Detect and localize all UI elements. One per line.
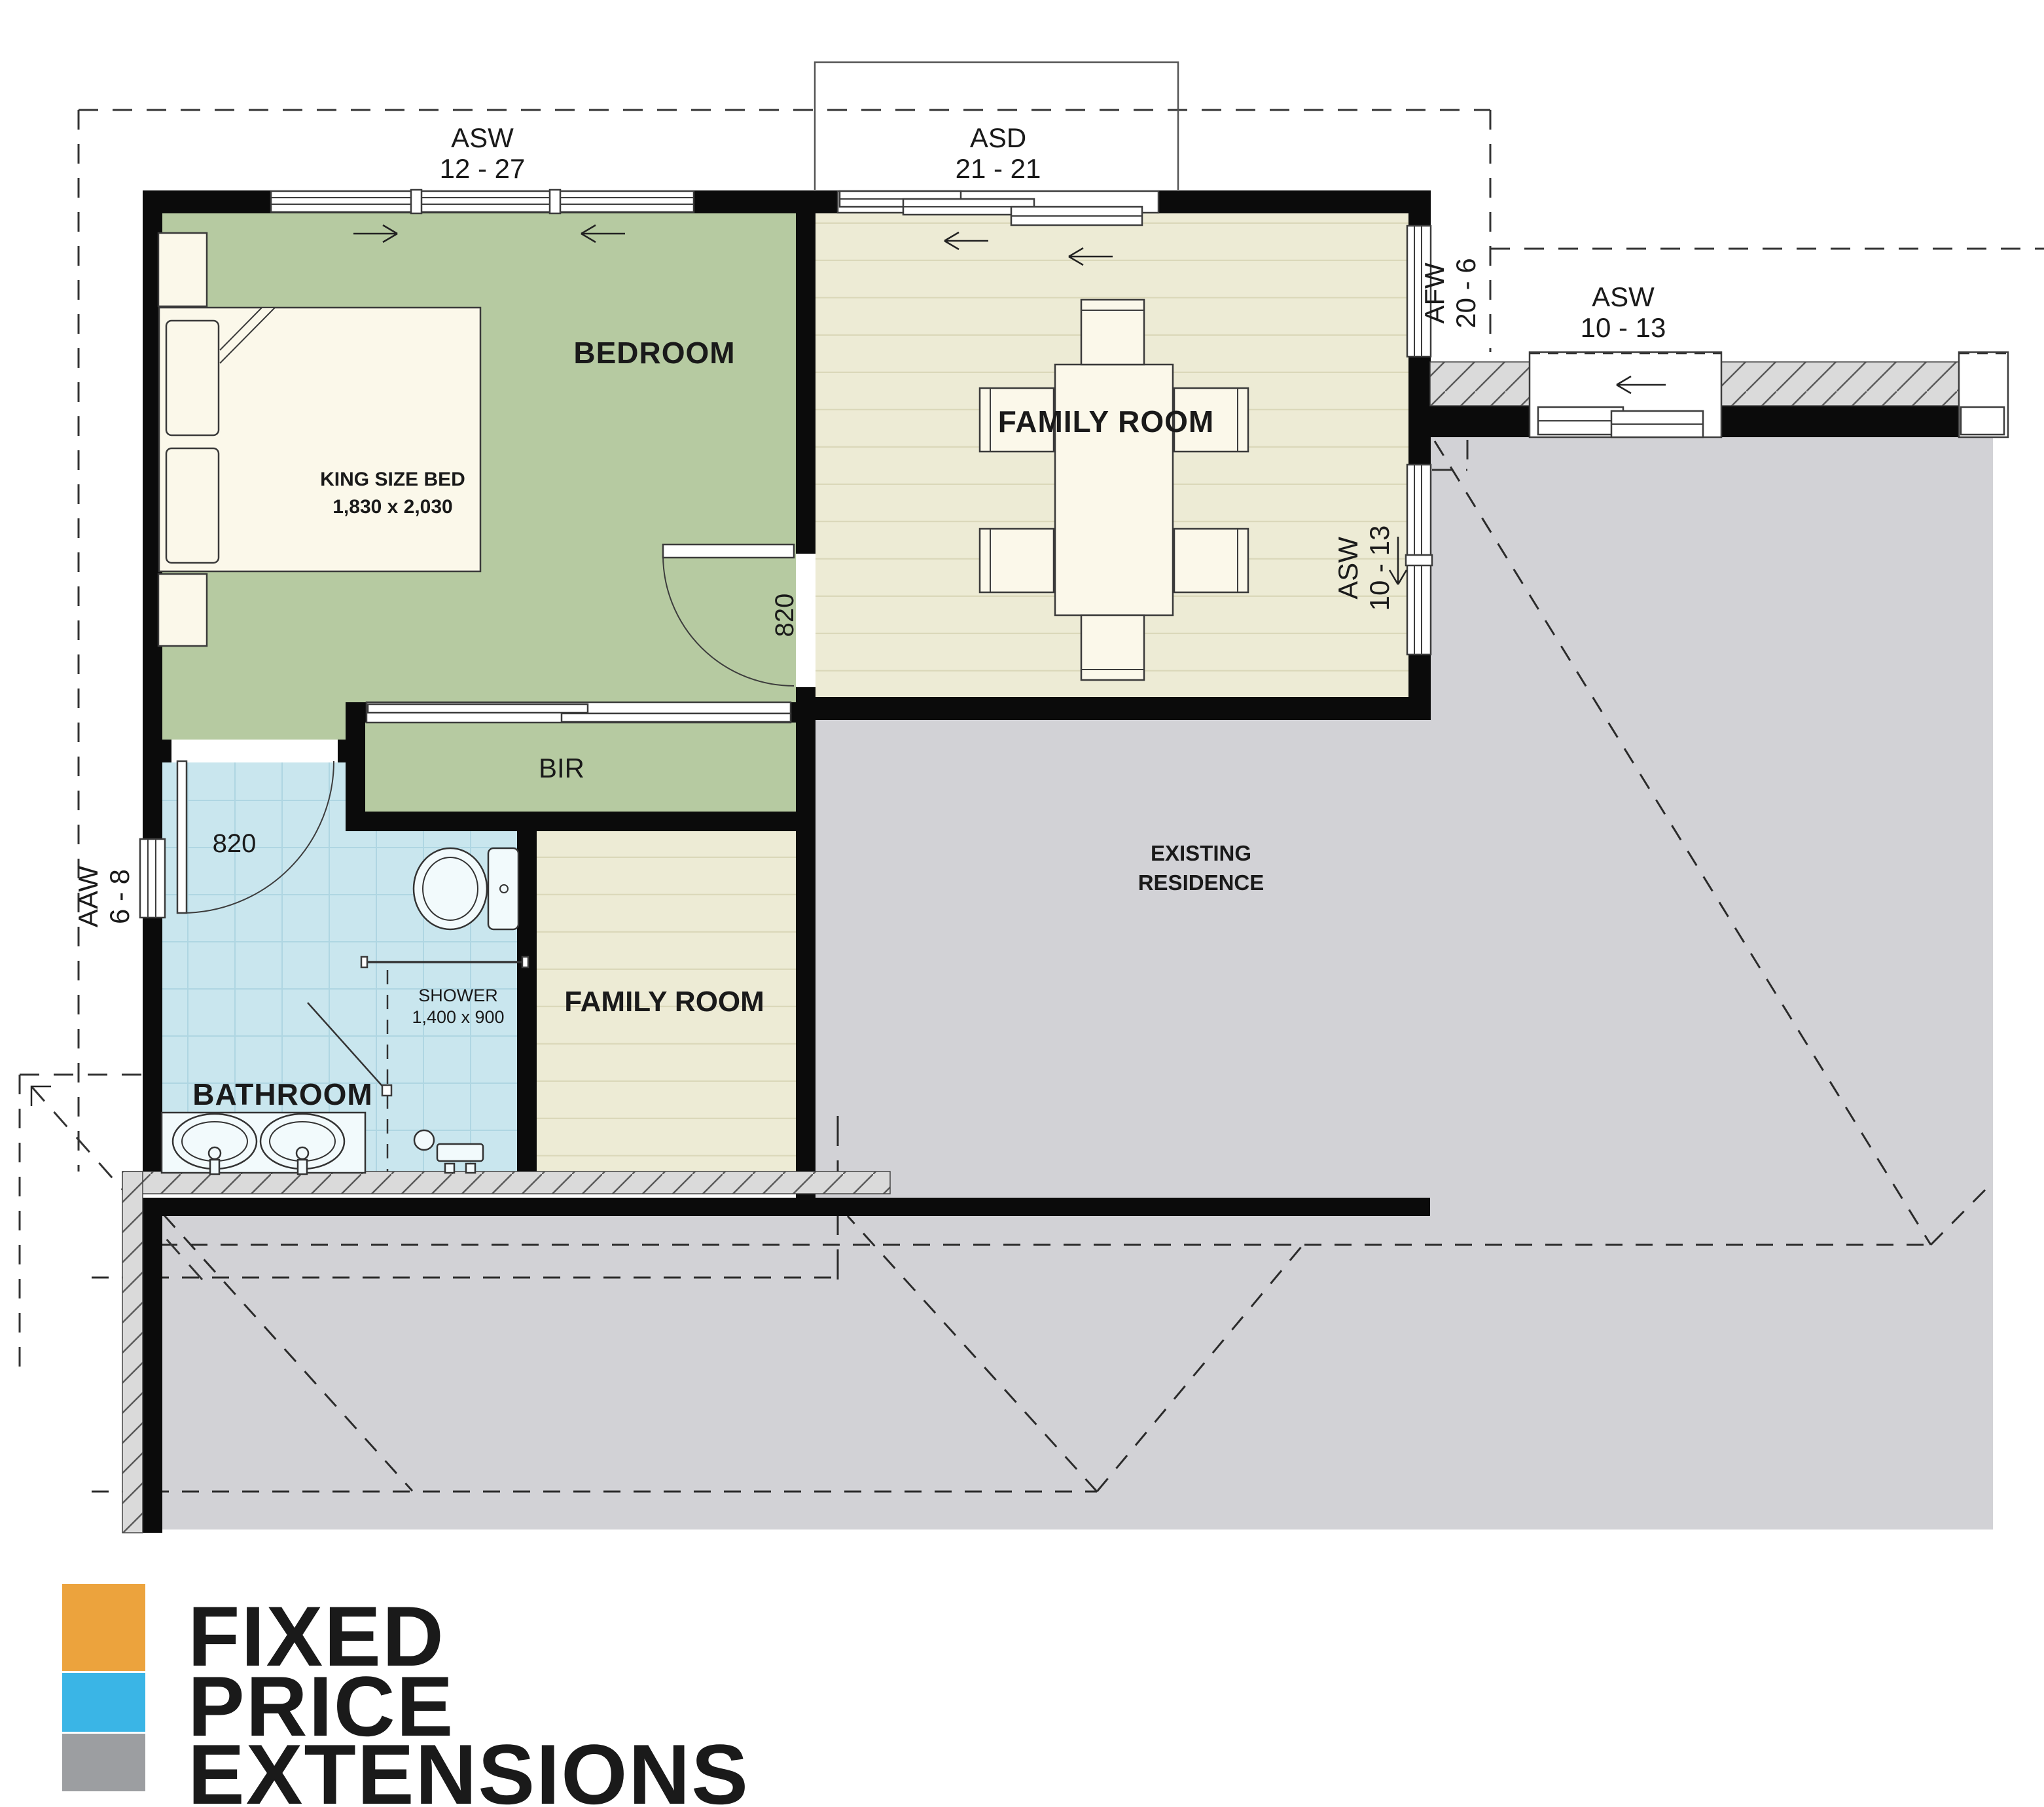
logo-text-extensions: EXTENSIONS xyxy=(188,1726,749,1807)
window-asw-existing-top xyxy=(1530,352,1721,437)
label-asw-existing-code: ASW xyxy=(1592,281,1655,312)
window-existing-top-right xyxy=(1959,352,2008,437)
toilet-icon xyxy=(414,848,518,929)
window-asw-bedroom-top xyxy=(271,190,694,213)
label-asw-existing-size: 10 - 13 xyxy=(1581,312,1666,343)
label-asw-bedroom-size: 12 - 27 xyxy=(440,153,526,184)
label-aaw-size: 6 - 8 xyxy=(104,869,135,924)
logo-square-gray xyxy=(62,1734,145,1791)
label-asw-bedroom-code: ASW xyxy=(451,122,514,153)
label-bedroom: BEDROOM xyxy=(573,336,735,370)
label-shower-2: 1,400 x 900 xyxy=(412,1007,504,1027)
label-bir: BIR xyxy=(539,753,584,783)
label-afw-size: 20 - 6 xyxy=(1450,258,1481,328)
label-aaw-code: AAW xyxy=(73,866,103,927)
logo-fixed-price-extensions: FIXED PRICE EXTENSIONS xyxy=(62,1584,749,1807)
label-shower-1: SHOWER xyxy=(418,986,498,1005)
logo-square-blue xyxy=(62,1673,145,1732)
label-family-lower: FAMILY ROOM xyxy=(564,986,764,1018)
label-afw-code: AFW xyxy=(1419,262,1450,324)
label-asd-code: ASD xyxy=(970,122,1026,153)
label-bathroom: BATHROOM xyxy=(192,1077,372,1111)
label-king-bed-1: KING SIZE BED xyxy=(320,469,465,490)
label-bedroom-door: 820 xyxy=(770,594,799,637)
floor-plan-drawing: ASW 12 - 27 ASD 21 - 21 ASW 10 - 13 AFW … xyxy=(0,0,2044,1807)
label-asw-family-code: ASW xyxy=(1333,537,1363,599)
dining-table-icon xyxy=(1055,365,1173,615)
label-existing-1: EXISTING xyxy=(1151,841,1251,865)
logo-square-orange xyxy=(62,1584,145,1671)
label-bathroom-door: 820 xyxy=(213,829,257,858)
window-asw-family-right xyxy=(1406,465,1432,654)
label-asw-family-size: 10 - 13 xyxy=(1364,526,1395,611)
label-family-upper: FAMILY ROOM xyxy=(998,404,1214,438)
vanity-icon xyxy=(162,1113,365,1174)
king-bed-icon xyxy=(159,308,480,571)
bir-sliding-door xyxy=(367,702,791,723)
label-asd-size: 21 - 21 xyxy=(956,153,1041,184)
label-king-bed-2: 1,830 x 2,030 xyxy=(332,496,453,518)
bedside-table-bottom xyxy=(158,574,207,646)
bedroom-floor-passage xyxy=(162,702,346,740)
floor-plan-page: ASW 12 - 27 ASD 21 - 21 ASW 10 - 13 AFW … xyxy=(0,0,2044,1807)
bedside-table-top xyxy=(158,233,207,306)
label-existing-2: RESIDENCE xyxy=(1138,870,1264,895)
window-aaw-bathroom-left xyxy=(140,839,165,918)
